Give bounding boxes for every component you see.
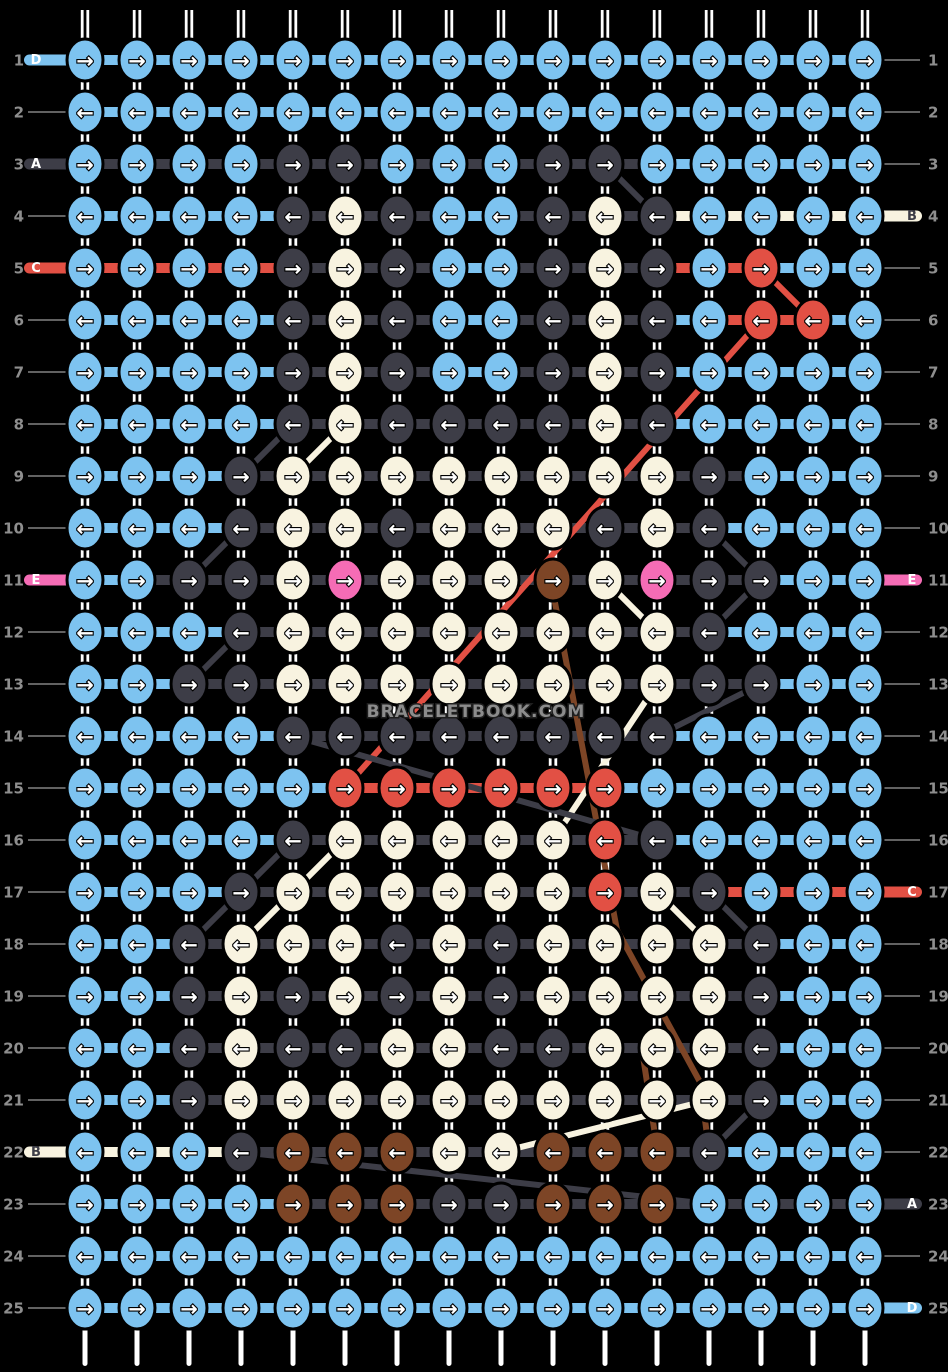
arrow-right-icon: → [336, 673, 354, 697]
arrow-left-icon: ← [856, 725, 874, 749]
arrow-left-icon: ← [804, 933, 822, 957]
arrow-right-icon: → [180, 257, 198, 281]
arrow-left-icon: ← [752, 309, 770, 333]
arrow-right-icon: → [336, 777, 354, 801]
bracelet-pattern-page: DABCEECBAD→→→→→→→→→→→→→→→→←←←←←←←←←←←←←←… [0, 0, 948, 1372]
arrow-left-icon: ← [284, 309, 302, 333]
arrow-right-icon: → [284, 1297, 302, 1321]
arrow-right-icon: → [76, 673, 94, 697]
arrow-left-icon: ← [128, 101, 146, 125]
arrow-left-icon: ← [804, 413, 822, 437]
arrow-right-icon: → [856, 1089, 874, 1113]
arrow-left-icon: ← [284, 517, 302, 541]
arrow-right-icon: → [544, 1089, 562, 1113]
arrow-right-icon: → [544, 881, 562, 905]
edge-line-left [28, 423, 66, 425]
arrow-right-icon: → [856, 153, 874, 177]
edge-line-left [28, 111, 66, 113]
arrow-right-icon: → [648, 569, 666, 593]
arrow-left-icon: ← [856, 933, 874, 957]
arrow-left-icon: ← [492, 101, 510, 125]
edge-line-left [28, 371, 66, 373]
row-number-right: 5 [928, 260, 938, 278]
arrow-left-icon: ← [648, 1037, 666, 1061]
arrow-left-icon: ← [492, 1037, 510, 1061]
arrow-right-icon: → [700, 257, 718, 281]
edge-line-right [884, 787, 920, 789]
arrow-left-icon: ← [856, 517, 874, 541]
arrow-left-icon: ← [232, 1037, 250, 1061]
arrow-left-icon: ← [128, 1245, 146, 1269]
row-number-right: 7 [928, 364, 938, 382]
arrow-right-icon: → [804, 673, 822, 697]
arrow-right-icon: → [752, 673, 770, 697]
arrow-right-icon: → [596, 1193, 614, 1217]
arrow-left-icon: ← [180, 621, 198, 645]
arrow-right-icon: → [336, 361, 354, 385]
arrow-left-icon: ← [492, 829, 510, 853]
arrow-left-icon: ← [336, 413, 354, 437]
row-number-left: 15 [3, 780, 24, 798]
arrow-right-icon: → [388, 777, 406, 801]
arrow-right-icon: → [440, 985, 458, 1009]
arrow-left-icon: ← [440, 725, 458, 749]
arrow-left-icon: ← [648, 413, 666, 437]
arrow-right-icon: → [336, 881, 354, 905]
arrow-left-icon: ← [544, 829, 562, 853]
arrow-right-icon: → [752, 465, 770, 489]
arrow-right-icon: → [336, 569, 354, 593]
arrow-left-icon: ← [336, 205, 354, 229]
arrow-left-icon: ← [232, 933, 250, 957]
edge-line-right [884, 163, 920, 165]
arrow-right-icon: → [440, 881, 458, 905]
arrow-left-icon: ← [856, 413, 874, 437]
edge-line-right [884, 839, 920, 841]
row-number-right: 2 [928, 104, 938, 122]
row-number-left: 17 [3, 884, 24, 902]
row-number-right: 10 [928, 520, 948, 538]
arrow-left-icon: ← [596, 309, 614, 333]
arrow-right-icon: → [856, 465, 874, 489]
arrow-right-icon: → [752, 1089, 770, 1113]
arrow-right-icon: → [700, 1089, 718, 1113]
string-tail [551, 1326, 556, 1366]
row-number-right: 9 [928, 468, 938, 486]
arrow-left-icon: ← [596, 829, 614, 853]
string-tail [239, 1326, 244, 1366]
arrow-right-icon: → [856, 49, 874, 73]
arrow-right-icon: → [232, 361, 250, 385]
arrow-left-icon: ← [856, 1245, 874, 1269]
arrow-right-icon: → [492, 49, 510, 73]
arrow-left-icon: ← [388, 101, 406, 125]
arrow-right-icon: → [76, 1297, 94, 1321]
edge-line-left [28, 631, 66, 633]
row-number-right: 8 [928, 416, 938, 434]
arrow-right-icon: → [700, 1297, 718, 1321]
arrow-left-icon: ← [544, 101, 562, 125]
arrow-left-icon: ← [804, 205, 822, 229]
arrow-right-icon: → [284, 1193, 302, 1217]
arrow-right-icon: → [856, 569, 874, 593]
thread-label-left: A [31, 157, 41, 172]
edge-line-left [28, 527, 66, 529]
arrow-right-icon: → [76, 777, 94, 801]
edge-line-right [884, 631, 920, 633]
arrow-left-icon: ← [440, 621, 458, 645]
arrow-left-icon: ← [440, 1037, 458, 1061]
edge-line-left [28, 995, 66, 997]
arrow-left-icon: ← [336, 621, 354, 645]
arrow-right-icon: → [804, 361, 822, 385]
arrow-right-icon: → [804, 465, 822, 489]
arrow-left-icon: ← [700, 309, 718, 333]
row-number-left: 5 [14, 260, 24, 278]
arrow-left-icon: ← [492, 621, 510, 645]
arrow-left-icon: ← [804, 621, 822, 645]
arrow-right-icon: → [232, 569, 250, 593]
arrow-right-icon: → [388, 1297, 406, 1321]
arrow-right-icon: → [492, 361, 510, 385]
arrow-left-icon: ← [440, 101, 458, 125]
arrow-left-icon: ← [232, 101, 250, 125]
arrow-left-icon: ← [440, 413, 458, 437]
arrow-left-icon: ← [128, 829, 146, 853]
arrow-left-icon: ← [544, 205, 562, 229]
row-number-right: 16 [928, 832, 948, 850]
string-tail [135, 1326, 140, 1366]
arrow-left-icon: ← [232, 621, 250, 645]
arrow-right-icon: → [648, 777, 666, 801]
arrow-left-icon: ← [544, 725, 562, 749]
arrow-right-icon: → [700, 985, 718, 1009]
row-number-right: 3 [928, 156, 938, 174]
arrow-right-icon: → [544, 361, 562, 385]
edge-line-right [884, 423, 920, 425]
row-number-right: 13 [928, 676, 948, 694]
arrow-left-icon: ← [284, 933, 302, 957]
row-number-left: 2 [14, 104, 24, 122]
arrow-right-icon: → [752, 361, 770, 385]
arrow-right-icon: → [544, 49, 562, 73]
string-tail [187, 1326, 192, 1366]
arrow-left-icon: ← [128, 621, 146, 645]
arrow-right-icon: → [76, 569, 94, 593]
arrow-left-icon: ← [336, 829, 354, 853]
arrow-right-icon: → [232, 257, 250, 281]
arrow-right-icon: → [128, 777, 146, 801]
arrow-left-icon: ← [700, 1141, 718, 1165]
arrow-left-icon: ← [440, 517, 458, 541]
arrow-left-icon: ← [648, 1245, 666, 1269]
arrow-left-icon: ← [752, 621, 770, 645]
arrow-left-icon: ← [388, 517, 406, 541]
arrow-left-icon: ← [180, 1037, 198, 1061]
arrow-right-icon: → [700, 881, 718, 905]
row-number-right: 25 [928, 1300, 948, 1318]
arrow-right-icon: → [804, 153, 822, 177]
arrow-right-icon: → [648, 1089, 666, 1113]
string-tail [655, 1326, 660, 1366]
arrow-left-icon: ← [804, 1141, 822, 1165]
arrow-left-icon: ← [128, 413, 146, 437]
arrow-left-icon: ← [752, 725, 770, 749]
row-number-right: 19 [928, 988, 948, 1006]
edge-line-left [28, 319, 66, 321]
arrow-left-icon: ← [752, 205, 770, 229]
arrow-right-icon: → [388, 153, 406, 177]
thread-label-right: A [907, 1197, 917, 1212]
arrow-left-icon: ← [232, 725, 250, 749]
edge-line-right [884, 371, 920, 373]
arrow-right-icon: → [596, 361, 614, 385]
arrow-right-icon: → [180, 1193, 198, 1217]
string-tail [707, 1326, 712, 1366]
arrow-right-icon: → [856, 985, 874, 1009]
arrow-left-icon: ← [180, 413, 198, 437]
string-tail [447, 1326, 452, 1366]
string-tail [811, 1326, 816, 1366]
arrow-right-icon: → [76, 465, 94, 489]
arrow-right-icon: → [752, 985, 770, 1009]
arrow-right-icon: → [648, 985, 666, 1009]
arrow-right-icon: → [388, 361, 406, 385]
arrow-right-icon: → [232, 673, 250, 697]
arrow-right-icon: → [804, 1193, 822, 1217]
arrow-left-icon: ← [388, 205, 406, 229]
edge-line-right [884, 995, 920, 997]
arrow-left-icon: ← [648, 933, 666, 957]
arrow-left-icon: ← [492, 309, 510, 333]
arrow-right-icon: → [76, 1089, 94, 1113]
edge-line-left [28, 215, 66, 217]
arrow-right-icon: → [336, 1089, 354, 1113]
arrow-left-icon: ← [856, 205, 874, 229]
row-number-right: 21 [928, 1092, 948, 1110]
arrow-right-icon: → [388, 465, 406, 489]
arrow-left-icon: ← [232, 1141, 250, 1165]
arrow-left-icon: ← [804, 309, 822, 333]
arrow-left-icon: ← [492, 413, 510, 437]
arrow-left-icon: ← [128, 309, 146, 333]
arrow-right-icon: → [388, 673, 406, 697]
arrow-left-icon: ← [492, 1141, 510, 1165]
edge-line-left [28, 1203, 66, 1205]
row-number-left: 16 [3, 832, 24, 850]
arrow-left-icon: ← [700, 517, 718, 541]
arrow-right-icon: → [180, 1089, 198, 1113]
arrow-right-icon: → [76, 257, 94, 281]
arrow-left-icon: ← [700, 1245, 718, 1269]
arrow-left-icon: ← [336, 1037, 354, 1061]
arrow-left-icon: ← [700, 413, 718, 437]
arrow-left-icon: ← [596, 101, 614, 125]
arrow-right-icon: → [648, 49, 666, 73]
arrow-left-icon: ← [76, 829, 94, 853]
row-number-left: 13 [3, 676, 24, 694]
arrow-right-icon: → [128, 569, 146, 593]
arrow-left-icon: ← [388, 1141, 406, 1165]
arrow-right-icon: → [232, 777, 250, 801]
arrow-right-icon: → [180, 777, 198, 801]
edge-line-right [884, 59, 920, 61]
row-number-left: 9 [14, 468, 24, 486]
arrow-right-icon: → [648, 361, 666, 385]
edge-line-left [28, 735, 66, 737]
arrow-right-icon: → [804, 257, 822, 281]
row-number-right: 15 [928, 780, 948, 798]
edge-line-right [884, 319, 920, 321]
row-number-left: 8 [14, 416, 24, 434]
arrow-left-icon: ← [232, 517, 250, 541]
arrow-left-icon: ← [752, 517, 770, 541]
arrow-left-icon: ← [284, 1037, 302, 1061]
row-number-left: 12 [3, 624, 24, 642]
arrow-right-icon: → [752, 881, 770, 905]
arrow-left-icon: ← [284, 205, 302, 229]
row-number-left: 4 [14, 208, 24, 226]
arrow-left-icon: ← [648, 829, 666, 853]
arrow-left-icon: ← [76, 413, 94, 437]
arrow-left-icon: ← [596, 413, 614, 437]
edge-line-left [28, 475, 66, 477]
arrow-right-icon: → [180, 1297, 198, 1321]
arrow-left-icon: ← [128, 517, 146, 541]
arrow-left-icon: ← [700, 101, 718, 125]
edge-line-left [28, 943, 66, 945]
thread-label-right: B [907, 209, 917, 224]
arrow-right-icon: → [232, 1089, 250, 1113]
arrow-left-icon: ← [596, 205, 614, 229]
arrow-right-icon: → [752, 1297, 770, 1321]
edge-line-left [28, 1047, 66, 1049]
arrow-right-icon: → [492, 1297, 510, 1321]
arrow-right-icon: → [440, 465, 458, 489]
arrow-right-icon: → [336, 1193, 354, 1217]
row-number-left: 14 [3, 728, 24, 746]
arrow-left-icon: ← [180, 933, 198, 957]
row-number-right: 1 [928, 52, 938, 70]
arrow-right-icon: → [284, 673, 302, 697]
arrow-right-icon: → [284, 777, 302, 801]
arrow-left-icon: ← [440, 309, 458, 333]
arrow-right-icon: → [128, 881, 146, 905]
arrow-left-icon: ← [856, 1037, 874, 1061]
arrow-left-icon: ← [388, 1037, 406, 1061]
arrow-right-icon: → [648, 1297, 666, 1321]
edge-line-left [28, 1099, 66, 1101]
arrow-left-icon: ← [388, 829, 406, 853]
arrow-left-icon: ← [648, 621, 666, 645]
arrow-left-icon: ← [180, 101, 198, 125]
string-tail [863, 1326, 868, 1366]
arrow-right-icon: → [128, 985, 146, 1009]
row-number-right: 14 [928, 728, 948, 746]
arrow-left-icon: ← [284, 101, 302, 125]
arrow-right-icon: → [284, 153, 302, 177]
row-number-left: 21 [3, 1092, 24, 1110]
arrow-left-icon: ← [128, 1037, 146, 1061]
arrow-right-icon: → [128, 465, 146, 489]
row-number-left: 20 [3, 1040, 24, 1058]
arrow-right-icon: → [544, 1193, 562, 1217]
arrow-right-icon: → [76, 153, 94, 177]
pattern-grid: DABCEECBAD→→→→→→→→→→→→→→→→←←←←←←←←←←←←←←… [0, 0, 948, 1372]
arrow-left-icon: ← [336, 933, 354, 957]
arrow-right-icon: → [232, 49, 250, 73]
arrow-left-icon: ← [752, 829, 770, 853]
arrow-right-icon: → [180, 673, 198, 697]
arrow-right-icon: → [804, 49, 822, 73]
arrow-left-icon: ← [284, 413, 302, 437]
edge-line-right [884, 267, 920, 269]
arrow-right-icon: → [596, 881, 614, 905]
arrow-right-icon: → [596, 49, 614, 73]
arrow-left-icon: ← [76, 933, 94, 957]
arrow-right-icon: → [700, 673, 718, 697]
arrow-left-icon: ← [388, 725, 406, 749]
edge-line-right [884, 683, 920, 685]
arrow-right-icon: → [440, 777, 458, 801]
arrow-left-icon: ← [76, 1141, 94, 1165]
arrow-left-icon: ← [804, 1037, 822, 1061]
edge-line-left [28, 1307, 66, 1309]
arrow-right-icon: → [700, 465, 718, 489]
arrow-left-icon: ← [596, 621, 614, 645]
arrow-right-icon: → [804, 569, 822, 593]
arrow-right-icon: → [128, 361, 146, 385]
arrow-right-icon: → [76, 361, 94, 385]
arrow-right-icon: → [752, 153, 770, 177]
arrow-left-icon: ← [700, 621, 718, 645]
arrow-left-icon: ← [76, 621, 94, 645]
arrow-left-icon: ← [284, 621, 302, 645]
arrow-left-icon: ← [544, 1037, 562, 1061]
arrow-left-icon: ← [76, 517, 94, 541]
arrow-left-icon: ← [856, 829, 874, 853]
arrow-right-icon: → [804, 985, 822, 1009]
arrow-left-icon: ← [648, 205, 666, 229]
row-number-left: 23 [3, 1196, 24, 1214]
arrow-right-icon: → [596, 1297, 614, 1321]
arrow-left-icon: ← [752, 413, 770, 437]
arrow-right-icon: → [388, 881, 406, 905]
edge-line-left [28, 891, 66, 893]
arrow-left-icon: ← [336, 1141, 354, 1165]
arrow-left-icon: ← [336, 309, 354, 333]
arrow-right-icon: → [492, 985, 510, 1009]
arrow-right-icon: → [596, 257, 614, 281]
arrow-right-icon: → [440, 257, 458, 281]
arrow-right-icon: → [492, 153, 510, 177]
arrow-right-icon: → [492, 257, 510, 281]
arrow-left-icon: ← [76, 1245, 94, 1269]
arrow-left-icon: ← [544, 1245, 562, 1269]
arrow-right-icon: → [648, 673, 666, 697]
row-number-right: 23 [928, 1196, 948, 1214]
arrow-right-icon: → [284, 1089, 302, 1113]
arrow-left-icon: ← [856, 309, 874, 333]
thread-label-right: C [907, 885, 917, 900]
arrow-right-icon: → [232, 1297, 250, 1321]
thread-label-left: C [31, 261, 41, 276]
arrow-right-icon: → [596, 673, 614, 697]
row-number-left: 7 [14, 364, 24, 382]
arrow-right-icon: → [856, 777, 874, 801]
arrow-left-icon: ← [284, 725, 302, 749]
arrow-right-icon: → [180, 465, 198, 489]
